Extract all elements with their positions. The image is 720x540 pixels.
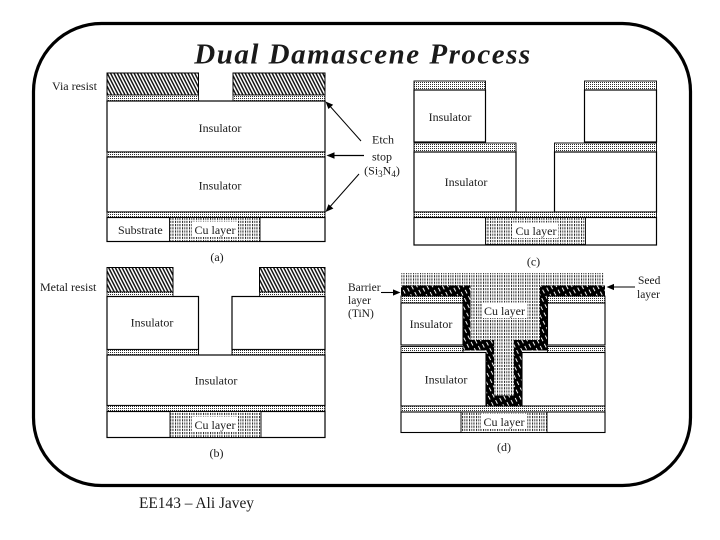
svg-text:Insulator: Insulator	[445, 175, 488, 189]
svg-text:Insulator: Insulator	[429, 110, 472, 124]
svg-text:Insulator: Insulator	[410, 317, 453, 331]
svg-text:layer: layer	[348, 295, 371, 307]
svg-text:Metal resist: Metal resist	[40, 280, 97, 294]
svg-text:(d): (d)	[497, 440, 511, 454]
svg-text:(a): (a)	[210, 250, 223, 264]
svg-text:Cu layer: Cu layer	[516, 224, 557, 238]
svg-text:Seed: Seed	[638, 275, 661, 287]
svg-text:Insulator: Insulator	[131, 316, 174, 330]
svg-text:Cu layer: Cu layer	[195, 223, 236, 237]
svg-text:Cu layer: Cu layer	[484, 415, 525, 429]
svg-text:Cu layer: Cu layer	[195, 418, 236, 432]
svg-text:Dual Damascene Process: Dual Damascene Process	[193, 39, 531, 71]
svg-text:Via resist: Via resist	[52, 79, 98, 93]
svg-text:EE143 – Ali Javey: EE143 – Ali Javey	[139, 495, 254, 512]
svg-text:Etch: Etch	[372, 133, 394, 147]
svg-text:Insulator: Insulator	[195, 374, 238, 388]
svg-text:(c): (c)	[527, 255, 540, 269]
svg-text:(TiN): (TiN)	[348, 308, 374, 320]
svg-text:stop: stop	[372, 150, 392, 164]
svg-text:(b): (b)	[210, 446, 224, 460]
svg-text:Insulator: Insulator	[199, 179, 242, 193]
svg-text:Barrier: Barrier	[348, 282, 381, 294]
svg-text:Insulator: Insulator	[425, 373, 468, 387]
svg-text:Substrate: Substrate	[118, 223, 163, 237]
svg-text:Insulator: Insulator	[199, 121, 242, 135]
svg-text:Cu layer: Cu layer	[484, 304, 525, 318]
svg-text:layer: layer	[637, 289, 660, 301]
